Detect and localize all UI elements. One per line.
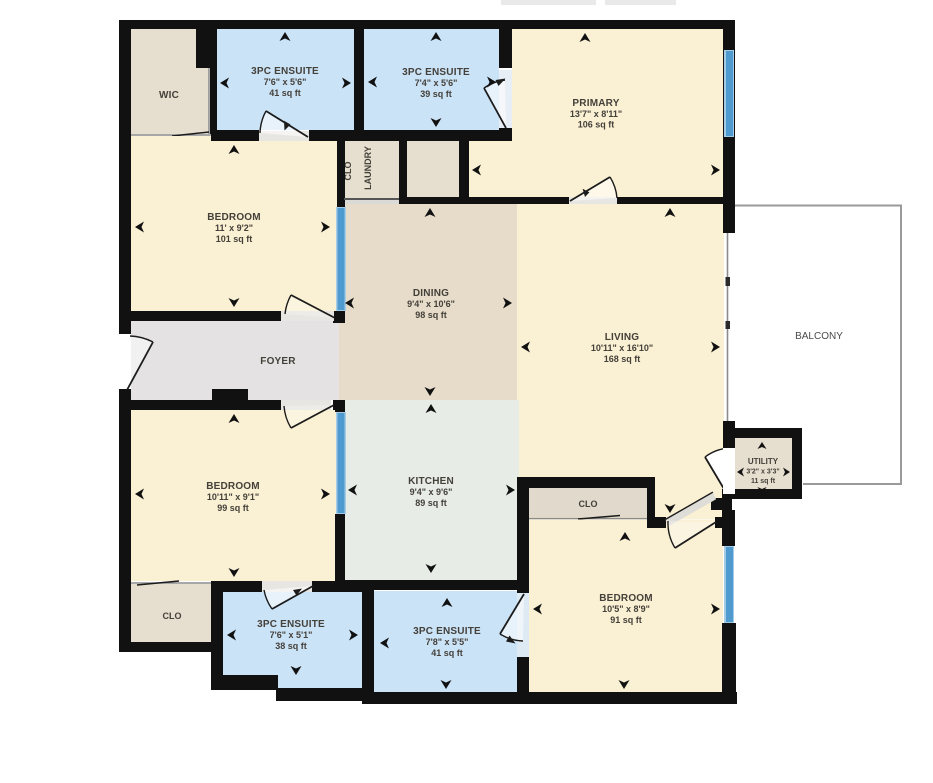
svg-text:98 sq ft: 98 sq ft	[415, 310, 447, 320]
svg-text:39 sq ft: 39 sq ft	[420, 89, 452, 99]
svg-text:KITCHEN: KITCHEN	[408, 476, 454, 487]
svg-text:10'5" x 8'9": 10'5" x 8'9"	[602, 604, 650, 614]
svg-text:DINING: DINING	[413, 288, 449, 299]
svg-text:106 sq ft: 106 sq ft	[578, 120, 615, 130]
svg-text:3PC ENSUITE: 3PC ENSUITE	[402, 67, 470, 78]
svg-text:LIVING: LIVING	[605, 332, 640, 343]
svg-text:CLO: CLO	[579, 499, 598, 509]
svg-text:168 sq ft: 168 sq ft	[604, 354, 641, 364]
svg-text:10'11" x 16'10": 10'11" x 16'10"	[591, 343, 653, 353]
svg-text:7'4" x 5'6": 7'4" x 5'6"	[415, 78, 458, 88]
svg-text:BALCONY: BALCONY	[795, 331, 843, 342]
svg-text:3PC ENSUITE: 3PC ENSUITE	[413, 626, 481, 637]
svg-text:LAUNDRY: LAUNDRY	[363, 146, 373, 190]
svg-text:3'2" x 3'3": 3'2" x 3'3"	[746, 469, 779, 476]
svg-text:89 sq ft: 89 sq ft	[415, 498, 447, 508]
svg-text:3PC ENSUITE: 3PC ENSUITE	[251, 66, 319, 77]
svg-text:10'11" x 9'1": 10'11" x 9'1"	[207, 492, 259, 502]
svg-text:99 sq ft: 99 sq ft	[217, 503, 249, 513]
svg-text:41 sq ft: 41 sq ft	[431, 648, 463, 658]
svg-text:41 sq ft: 41 sq ft	[269, 88, 301, 98]
svg-text:3PC ENSUITE: 3PC ENSUITE	[257, 619, 325, 630]
svg-text:13'7" x 8'11": 13'7" x 8'11"	[570, 109, 622, 119]
svg-text:FOYER: FOYER	[260, 356, 296, 367]
svg-text:BEDROOM: BEDROOM	[599, 593, 653, 604]
svg-text:7'6" x 5'1": 7'6" x 5'1"	[270, 630, 313, 640]
svg-text:11' x 9'2": 11' x 9'2"	[215, 223, 253, 233]
svg-text:7'8" x 5'5": 7'8" x 5'5"	[426, 637, 469, 647]
svg-text:CLO: CLO	[163, 611, 182, 621]
svg-text:11 sq ft: 11 sq ft	[751, 478, 776, 485]
svg-text:9'4" x 10'6": 9'4" x 10'6"	[407, 299, 455, 309]
svg-text:101 sq ft: 101 sq ft	[216, 234, 253, 244]
svg-text:WIC: WIC	[159, 90, 179, 101]
svg-text:PRIMARY: PRIMARY	[572, 98, 619, 109]
svg-text:BEDROOM: BEDROOM	[206, 481, 260, 492]
svg-text:7'6" x 5'6": 7'6" x 5'6"	[264, 77, 307, 87]
svg-text:UTILITY: UTILITY	[748, 457, 779, 466]
svg-text:91 sq ft: 91 sq ft	[610, 615, 642, 625]
svg-text:9'4" x 9'6": 9'4" x 9'6"	[410, 487, 453, 497]
svg-text:38 sq ft: 38 sq ft	[275, 641, 307, 651]
svg-text:BEDROOM: BEDROOM	[207, 212, 261, 223]
